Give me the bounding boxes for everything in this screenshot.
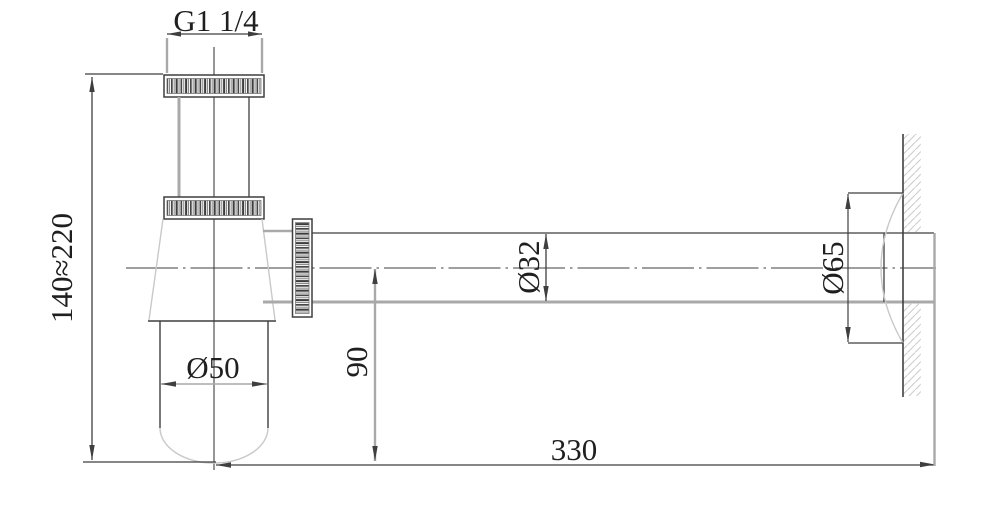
- cone-left-edge: [149, 219, 163, 320]
- dim-flange-label: Ø65: [815, 241, 850, 294]
- dim-arrow: [89, 77, 94, 92]
- dim-cup-label: Ø50: [186, 350, 239, 385]
- dim-arrow: [372, 269, 377, 284]
- dim-drop-height: 90: [339, 269, 378, 461]
- dim-arrow: [252, 381, 267, 386]
- dim-height-range: 140≈220: [44, 74, 163, 460]
- bottle-trap-body: [148, 75, 276, 463]
- dim-arrow: [920, 462, 935, 467]
- dim-thread-label: G1 1/4: [173, 3, 259, 38]
- drawing-canvas: G1 1/4 140≈220 Ø50 90 Ø32: [0, 0, 1000, 525]
- dim-pipe-label: Ø32: [511, 240, 546, 293]
- dim-cup-diameter: Ø50: [161, 350, 267, 387]
- cone-right-edge: [262, 219, 275, 320]
- dim-flange-diameter: Ø65: [815, 194, 851, 342]
- dim-arrow: [372, 446, 377, 461]
- dim-pipe-diameter: Ø32: [511, 234, 549, 301]
- dim-arrow: [845, 327, 850, 342]
- lock-nut-knurling: [167, 201, 261, 216]
- dim-arrow: [845, 194, 850, 209]
- wall-hatching-lower: [904, 303, 921, 396]
- compression-nut-knurling: [296, 223, 310, 314]
- dim-length-label: 330: [551, 432, 598, 467]
- dim-drop-label: 90: [339, 347, 374, 378]
- dim-arrow: [161, 381, 176, 386]
- dim-arrow: [89, 445, 94, 460]
- wall-hatching-upper: [904, 134, 921, 232]
- top-nut-knurling: [167, 79, 261, 94]
- bottle-trap-drawing: G1 1/4 140≈220 Ø50 90 Ø32: [0, 0, 1000, 525]
- dim-height-label: 140≈220: [44, 213, 79, 323]
